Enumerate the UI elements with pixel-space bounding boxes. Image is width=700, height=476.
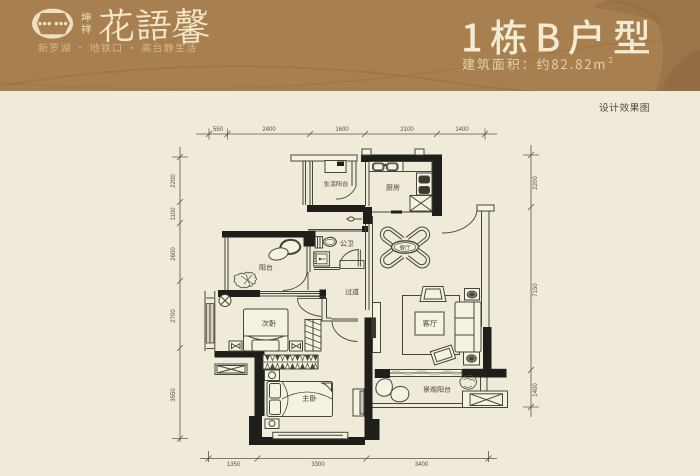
svg-text:3550: 3550 xyxy=(171,388,177,402)
svg-text:7150: 7150 xyxy=(533,283,539,297)
svg-text:2200: 2200 xyxy=(171,174,177,188)
svg-text:1100: 1100 xyxy=(171,207,177,221)
svg-text:3400: 3400 xyxy=(415,462,429,468)
svg-text:2100: 2100 xyxy=(400,127,414,133)
svg-text:1350: 1350 xyxy=(227,462,241,468)
svg-text:2400: 2400 xyxy=(262,127,276,133)
svg-text:2200: 2200 xyxy=(533,176,539,190)
svg-text:1600: 1600 xyxy=(335,127,349,133)
svg-text:2700: 2700 xyxy=(171,309,177,323)
svg-text:3300: 3300 xyxy=(311,462,325,468)
svg-text:1400: 1400 xyxy=(455,127,469,133)
svg-text:1400: 1400 xyxy=(533,383,539,397)
svg-text:2600: 2600 xyxy=(171,247,177,261)
svg-text:550: 550 xyxy=(213,127,224,133)
